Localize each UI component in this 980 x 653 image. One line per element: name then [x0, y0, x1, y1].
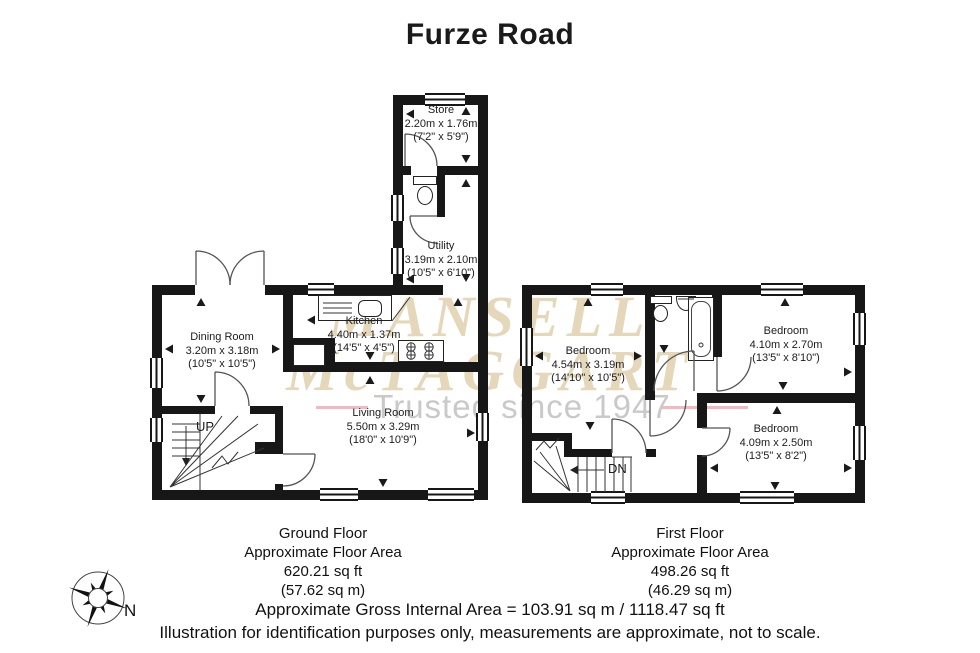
dimension-arrow-icon: [366, 376, 375, 384]
dimension-arrow-icon: [586, 422, 595, 430]
floor-name: First Floor: [560, 524, 820, 543]
room-dim-imperial: (13'5" x 8'2"): [701, 450, 851, 464]
dimension-arrow-icon: [844, 368, 852, 377]
stairs-up-winders: [170, 416, 264, 487]
room-dim-metric: 4.10m x 2.70m: [711, 339, 861, 353]
room-dim-metric: 3.19m x 2.10m: [366, 254, 516, 268]
room-name: Dining Room: [147, 331, 297, 345]
floorplan-canvas: Furze Road MANSELL McTAGGART Trusted sin…: [0, 0, 980, 653]
dimension-arrow-icon: [454, 298, 463, 306]
door-utility: [410, 216, 437, 243]
bath-drain: [699, 343, 703, 347]
floor-name: Ground Floor: [193, 524, 453, 543]
dimension-arrow-icon: [779, 382, 788, 390]
dimension-arrow-icon: [710, 464, 718, 473]
floor-area-label: Approximate Floor Area: [193, 543, 453, 562]
stairs-down-break-line: [536, 438, 559, 450]
footer-gross-area: Approximate Gross Internal Area = 103.91…: [0, 600, 980, 620]
door-bedroom1: [650, 400, 686, 436]
room-name: Living Room: [308, 407, 458, 421]
room-dim-imperial: (10'5" x 10'5"): [147, 358, 297, 372]
stairs-up-label: UP: [196, 419, 214, 434]
room-name: Utility: [366, 240, 516, 254]
floor-area-sqm: (57.62 sq m): [193, 581, 453, 600]
floor-area-sqft: 620.21 sq ft: [193, 562, 453, 581]
room-dim-metric: 5.50m x 3.29m: [308, 421, 458, 435]
room-label-living: Living Room 5.50m x 3.29m (18'0" x 10'9"…: [308, 407, 458, 448]
first-floor-caption: First Floor Approximate Floor Area 498.2…: [560, 524, 820, 600]
stairs-down-direction-arrowhead: [570, 466, 578, 475]
dimension-arrow-icon: [771, 482, 780, 490]
room-dim-metric: 4.09m x 2.50m: [701, 437, 851, 451]
dimension-arrow-icon: [467, 429, 475, 438]
ground-floor-caption: Ground Floor Approximate Floor Area 620.…: [193, 524, 453, 600]
room-label-utility: Utility 3.19m x 2.10m (10'5" x 6'10"): [366, 240, 516, 281]
door-hall-dining: [215, 372, 249, 406]
room-name: Bedroom: [711, 325, 861, 339]
door-dining-french-left: [196, 251, 230, 285]
room-dim-imperial: (14'5" x 4'5"): [289, 342, 439, 356]
room-label-bedroom2: Bedroom 4.10m x 2.70m (13'5" x 8'10"): [711, 325, 861, 366]
room-dim-imperial: (10'5" x 6'10"): [366, 267, 516, 281]
stairs-up-lines: [170, 414, 264, 490]
door-landing: [612, 419, 646, 453]
door-hall-living: [283, 454, 315, 486]
dimension-arrow-icon: [379, 479, 388, 487]
dimension-arrow-icon: [197, 298, 206, 306]
room-label-bedroom1: Bedroom 4.54m x 3.19m (14'10" x 10'5"): [513, 345, 663, 386]
room-name: Kitchen: [289, 315, 439, 329]
room-label-dining: Dining Room 3.20m x 3.18m (10'5" x 10'5"…: [147, 331, 297, 372]
dimension-arrow-icon: [781, 298, 790, 306]
dimension-arrow-icon: [462, 179, 471, 187]
room-label-bedroom3: Bedroom 4.09m x 2.50m (13'5" x 8'2"): [701, 423, 851, 464]
dimension-arrow-icon: [773, 406, 782, 414]
floor-area-sqft: 498.26 sq ft: [560, 562, 820, 581]
floor-area-sqm: (46.29 sq m): [560, 581, 820, 600]
stairs-down-winders: [534, 446, 570, 491]
room-name: Bedroom: [513, 345, 663, 359]
sink-drainer-lines: [323, 303, 352, 313]
door-dining-french-right: [230, 251, 264, 285]
room-label-kitchen: Kitchen 4.40m x 1.37m (14'5" x 4'5"): [289, 315, 439, 356]
room-label-store: Store 2.20m x 1.76m (7'2" x 5'9"): [366, 104, 516, 145]
dimension-arrow-icon: [197, 395, 206, 403]
room-name: Bedroom: [701, 423, 851, 437]
stairs-down-label: DN: [608, 461, 627, 476]
page-title: Furze Road: [0, 18, 980, 52]
dimension-arrow-icon: [844, 464, 852, 473]
room-dim-imperial: (13'5" x 8'10"): [711, 352, 861, 366]
floor-area-label: Approximate Floor Area: [560, 543, 820, 562]
room-dim-imperial: (18'0" x 10'9"): [308, 434, 458, 448]
room-dim-metric: 3.20m x 3.18m: [147, 345, 297, 359]
room-dim-metric: 2.20m x 1.76m: [366, 118, 516, 132]
room-dim-imperial: (14'10" x 10'5"): [513, 372, 663, 386]
room-dim-metric: 4.54m x 3.19m: [513, 359, 663, 373]
room-dim-metric: 4.40m x 1.37m: [289, 329, 439, 343]
room-dim-imperial: (7'2" x 5'9"): [366, 131, 516, 145]
room-name: Store: [366, 104, 516, 118]
dimension-arrow-icon: [462, 155, 471, 163]
footer-disclaimer: Illustration for identification purposes…: [0, 623, 980, 643]
dimension-arrow-icon: [584, 298, 593, 306]
